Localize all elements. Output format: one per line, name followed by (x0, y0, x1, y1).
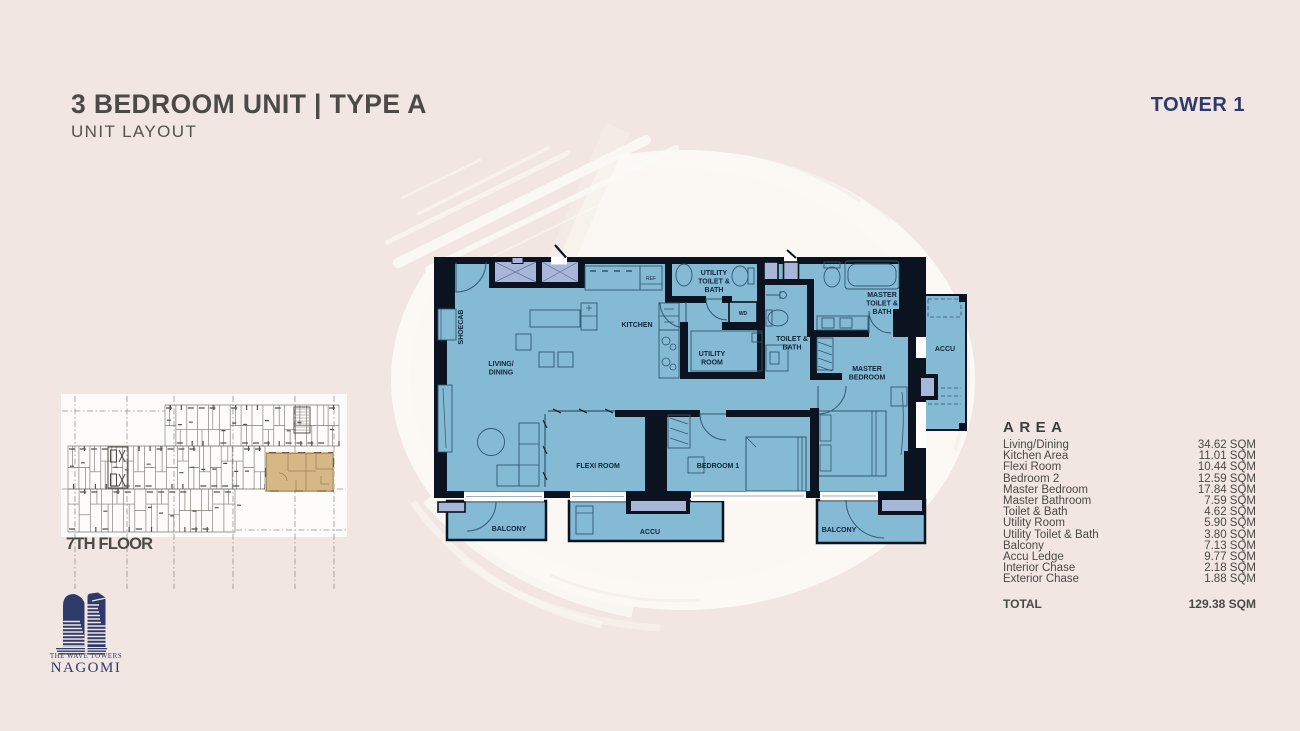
svg-text:WD: WD (739, 311, 748, 317)
svg-text:BEDROOM: BEDROOM (849, 375, 886, 382)
svg-text:UTILITY: UTILITY (699, 351, 726, 358)
svg-text:KITCHEN: KITCHEN (621, 322, 652, 329)
svg-text:MASTER: MASTER (852, 366, 882, 373)
svg-text:TOILET &: TOILET & (776, 336, 808, 343)
svg-text:SHOECAB: SHOECAB (458, 309, 465, 344)
svg-text:ACCU: ACCU (935, 346, 955, 353)
svg-text:UTILITY: UTILITY (701, 270, 728, 277)
svg-text:BATH: BATH (873, 309, 892, 316)
svg-text:DINING: DINING (489, 370, 514, 377)
svg-text:BALCONY: BALCONY (822, 527, 857, 534)
svg-text:BATH: BATH (783, 345, 802, 352)
svg-text:TOILET &: TOILET & (698, 279, 730, 286)
svg-text:BEDROOM 1: BEDROOM 1 (697, 463, 740, 470)
svg-text:BALCONY: BALCONY (492, 526, 527, 533)
svg-text:ROOM: ROOM (701, 360, 723, 367)
svg-text:BATH: BATH (705, 287, 724, 294)
svg-text:FLEXI ROOM: FLEXI ROOM (576, 463, 620, 470)
svg-text:TOILET &: TOILET & (866, 301, 898, 308)
svg-text:LIVING/: LIVING/ (488, 361, 513, 368)
svg-text:MASTER: MASTER (867, 292, 897, 299)
svg-text:ACCU: ACCU (640, 529, 660, 536)
svg-text:REF: REF (646, 276, 656, 282)
